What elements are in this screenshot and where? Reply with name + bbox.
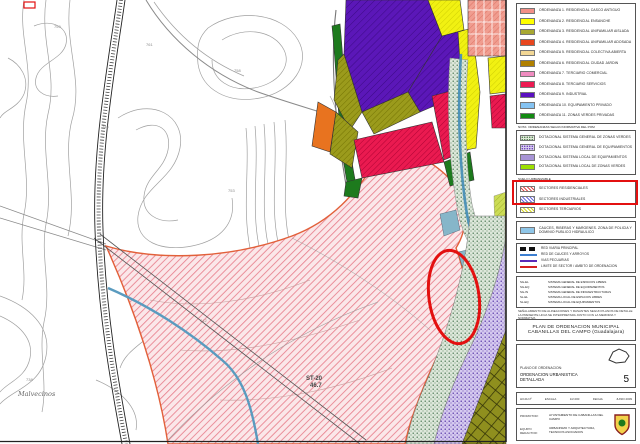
map-area[interactable]: ST-20 46.7 Malvecinos 759 761 758 746 75…	[0, 0, 512, 444]
legend-row[interactable]: DOTACIONAL SISTEMA GENERAL DE ZONAS VERD…	[520, 135, 632, 142]
legend-swatch	[520, 113, 535, 120]
abbr-code: SL-EL	[520, 295, 544, 299]
legend-label: ORDENANZA 11. ZONAS VERDES PRIVADAS	[539, 114, 614, 118]
legend-row[interactable]: LIMITE DE SECTOR / AMBITO DE ORDENACION	[520, 265, 632, 269]
yellow-zone-r	[488, 56, 506, 94]
legend-label: ORDENANZA 8. TERCIARIO SERVICIOS	[539, 83, 606, 87]
planning-map: ST-20 46.7 Malvecinos 759 761 758 746 75…	[0, 0, 512, 444]
legend-swatch	[520, 102, 535, 109]
elevation-label: 758	[234, 68, 241, 73]
legend-dotacional: DOTACIONAL SISTEMA GENERAL DE ZONAS VERD…	[516, 130, 636, 175]
line-symbol	[520, 266, 537, 267]
line-symbol	[520, 247, 537, 251]
elevation-label: 759	[54, 24, 61, 29]
legend-agua: CAUCES, RIBERAS Y MARGENES. ZONA DE POLI…	[516, 221, 636, 240]
legend-swatch	[520, 60, 535, 67]
legend-swatch	[520, 39, 535, 46]
highlight-rect-annotation	[512, 180, 638, 205]
field-hoja: HOJA Nº	[520, 397, 532, 401]
title-block: PLAN DE ORDENACION MUNICIPAL CABANILLAS …	[516, 319, 636, 341]
legend-label: ORDENANZA 1. RESIDENCIAL CASCO ANTIGUO	[539, 9, 620, 13]
sector-code-label: ST-20	[306, 376, 323, 382]
legend-swatch	[520, 154, 535, 161]
abbr-label: SISTEMA GENERAL DE ESPACIOS LIBRES	[548, 280, 606, 284]
legend-label: ORDENANZA 10. EQUIPAMIENTO PRIVADO	[539, 104, 612, 108]
abbr-code: SL-EQ	[520, 300, 544, 304]
legend-row[interactable]: ORDENANZA 7. TERCIARIO COMERCIAL	[520, 71, 632, 78]
legend-swatch	[520, 227, 535, 234]
elevation-label: 753	[228, 188, 235, 193]
abbr-label: SISTEMA LOCAL DE EQUIPAMIENTOS	[548, 300, 600, 304]
fields-block: HOJA Nº ESCALA 1/2.000 FECHA JUNIO 2009	[516, 392, 636, 405]
legend-label: DOTACIONAL SISTEMA GENERAL DE ZONAS VERD…	[539, 136, 631, 140]
legend-swatch	[520, 18, 535, 25]
legend-swatch	[520, 164, 535, 171]
legend-label: ORDENANZA 7. TERCIARIO COMERCIAL	[539, 72, 608, 76]
legend-abreviaturas: SG-EL SISTEMA GENERAL DE ESPACIOS LIBRES…	[516, 276, 636, 308]
legend-row[interactable]: RED DE CAUCES Y ARROYOS	[520, 253, 632, 257]
legend-label: CAUCES, RIBERAS Y MARGENES. ZONA DE POLI…	[539, 227, 632, 234]
abbr-label: SISTEMA GENERAL DE EQUIPAMIENTOS	[548, 285, 605, 289]
elevation-label: 746	[102, 124, 109, 129]
abbr-label: SISTEMA LOCAL DE ESPACIOS LIBRES	[548, 295, 602, 299]
abbr-label: SISTEMA GENERAL DE INFRAESTRUCTURAS	[548, 290, 611, 294]
legend-row[interactable]: ORDENANZA 2. RESIDENCIAL ENSANCHE	[520, 18, 632, 25]
field-escala: ESCALA	[545, 397, 556, 401]
legend-panel: ORDENANZA 1. RESIDENCIAL CASCO ANTIGUO O…	[512, 0, 640, 444]
legend-row[interactable]: ORDENANZA 11. ZONAS VERDES PRIVADAS	[520, 113, 632, 120]
sheet-number: 5	[623, 374, 629, 385]
abbr-code: SG-EL	[520, 280, 544, 284]
legend-label: VIAS PECUARIAS	[541, 259, 569, 262]
legend-label: ORDENANZA 9. INDUSTRIAL	[539, 93, 587, 97]
legend-lineas: RED VIARIA PRINCIPAL RED DE CAUCES Y ARR…	[516, 243, 636, 273]
legend-row[interactable]: ORDENANZA 1. RESIDENCIAL CASCO ANTIGUO	[520, 8, 632, 15]
legend-label: DOTACIONAL SISTEMA GENERAL DE EQUIPAMIEN…	[539, 146, 632, 150]
plan-title-line2: CABANILLAS DEL CAMPO (Guadalajara)	[528, 330, 624, 335]
legend-label: ORDENANZA 5. RESIDENCIAL COLECTIVA ABIER…	[539, 51, 626, 55]
promotor-label: PROMOTOR:	[520, 414, 546, 421]
legend-swatch	[520, 144, 535, 151]
legend-label: RED DE CAUCES Y ARROYOS	[541, 253, 589, 256]
municipality-outline-icon	[606, 347, 632, 365]
abbr-code: SG-IN	[520, 290, 544, 294]
legend-row: SG-EL SISTEMA GENERAL DE ESPACIOS LIBRES	[520, 280, 632, 284]
field-fecha: FECHA	[593, 397, 603, 401]
legend-row[interactable]: DOTACIONAL SISTEMA LOCAL DE ZONAS VERDES	[520, 164, 632, 171]
promotor-value: AYUNTAMIENTO DE CABANILLAS DEL CAMPO	[549, 414, 609, 421]
legend-row[interactable]: SECTORES TERCIARIOS	[520, 207, 632, 214]
legend-urbanizable: SECTORES RESIDENCIALES SECTORES INDUSTRI…	[516, 181, 636, 218]
planning-sheet: ST-20 46.7 Malvecinos 759 761 758 746 75…	[0, 0, 640, 444]
elevation-label: 738	[26, 377, 33, 382]
legend-row: SL-EQ SISTEMA LOCAL DE EQUIPAMIENTOS	[520, 300, 632, 304]
legend-row[interactable]: VIAS PECUARIAS	[520, 259, 632, 263]
legend-footnote: NOTA: ORDENANZAS SEGUN NORMATIVA DEL POM	[518, 125, 595, 129]
legend-row[interactable]: CAUCES, RIBERAS Y MARGENES. ZONA DE POLI…	[520, 227, 632, 234]
legend-swatch	[520, 81, 535, 88]
legend-row[interactable]: ORDENANZA 5. RESIDENCIAL COLECTIVA ABIER…	[520, 50, 632, 57]
plano-name: ORDENACION URBANISTICA DETALLADA	[520, 372, 600, 382]
legend-row[interactable]: ORDENANZA 4. RESIDENCIAL UNIFAMILIAR ADO…	[520, 39, 632, 46]
line-symbol	[520, 260, 537, 261]
promotor-block: PROMOTOR: AYUNTAMIENTO DE CABANILLAS DEL…	[516, 408, 636, 441]
legend-label: ORDENANZA 2. RESIDENCIAL ENSANCHE	[539, 20, 610, 24]
legend-row[interactable]: RED VIARIA PRINCIPAL	[520, 247, 632, 251]
legend-swatch	[520, 135, 535, 142]
legend-row[interactable]: ORDENANZA 10. EQUIPAMIENTO PRIVADO	[520, 102, 632, 109]
crimson-zone-r	[490, 94, 506, 128]
legend-row[interactable]: DOTACIONAL SISTEMA GENERAL DE EQUIPAMIEN…	[520, 144, 632, 151]
plano-block: PLANO DE ORDENACION: ORDENACION URBANIST…	[516, 344, 636, 388]
legend-row[interactable]: DOTACIONAL SISTEMA LOCAL DE EQUIPAMIENTO…	[520, 154, 632, 161]
sector-area-label: 46.7	[310, 383, 322, 389]
legend-ordenanzas: ORDENANZA 1. RESIDENCIAL CASCO ANTIGUO O…	[516, 3, 636, 124]
legend-label: SECTORES TERCIARIOS	[539, 208, 581, 212]
elevation-label: 761	[146, 42, 153, 47]
legend-label: DOTACIONAL SISTEMA LOCAL DE EQUIPAMIENTO…	[539, 156, 627, 160]
legend-row: SG-IN SISTEMA GENERAL DE INFRAESTRUCTURA…	[520, 290, 632, 294]
coat-of-arms-icon	[613, 413, 631, 437]
place-name-label: Malvecinos	[17, 390, 56, 398]
legend-label: ORDENANZA 3. RESIDENCIAL UNIFAMILIAR AIS…	[539, 30, 629, 34]
legend-row: SL-EL SISTEMA LOCAL DE ESPACIOS LIBRES	[520, 295, 632, 299]
legend-swatch	[520, 29, 535, 36]
legend-swatch	[520, 92, 535, 99]
redactor-label: EQUIPO REDACTOR:	[520, 427, 546, 435]
elevation-label: 742	[200, 318, 207, 323]
legend-row[interactable]: ORDENANZA 8. TERCIARIO SERVICIOS	[520, 81, 632, 88]
legend-swatch	[520, 8, 535, 15]
legend-label: DOTACIONAL SISTEMA LOCAL DE ZONAS VERDES	[539, 165, 625, 169]
legend-label: LIMITE DE SECTOR / AMBITO DE ORDENACION	[541, 265, 617, 268]
legend-row: SG-EQ SISTEMA GENERAL DE EQUIPAMIENTOS	[520, 285, 632, 289]
abbr-code: SG-EQ	[520, 285, 544, 289]
field-escala-value: 1/2.000	[570, 397, 580, 401]
legend-row[interactable]: ORDENANZA 6. RESIDENCIAL CIUDAD JARDIN	[520, 60, 632, 67]
legend-label: ORDENANZA 6. RESIDENCIAL CIUDAD JARDIN	[539, 62, 618, 66]
legend-label: RED VIARIA PRINCIPAL	[541, 247, 578, 250]
legend-swatch	[520, 207, 535, 214]
plano-label: PLANO DE ORDENACION:	[520, 366, 600, 370]
field-fecha-value: JUNIO 2009	[616, 397, 632, 401]
redactor-value: URBANISMO Y ARQUITECTURA, TECNICOS ASOCI…	[549, 427, 609, 435]
legend-label: ORDENANZA 4. RESIDENCIAL UNIFAMILIAR ADO…	[539, 41, 631, 45]
legend-swatch	[520, 71, 535, 78]
legend-row[interactable]: ORDENANZA 3. RESIDENCIAL UNIFAMILIAR AIS…	[520, 29, 632, 36]
legend-row[interactable]: ORDENANZA 9. INDUSTRIAL	[520, 92, 632, 99]
legend-swatch	[520, 50, 535, 57]
line-symbol	[520, 254, 537, 255]
